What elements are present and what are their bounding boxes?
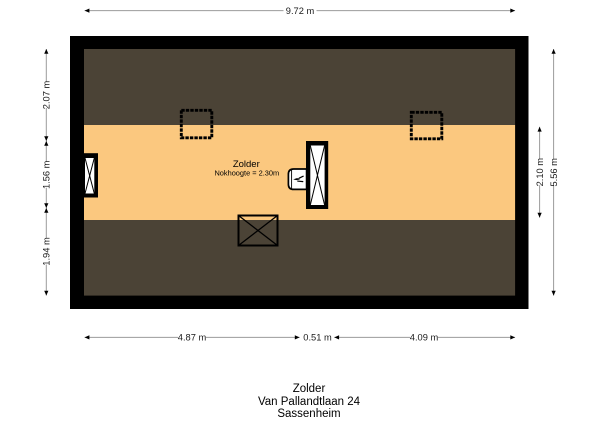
svg-text:Van Pallandtlaan 24: Van Pallandtlaan 24	[258, 396, 361, 408]
svg-text:4.87 m: 4.87 m	[178, 333, 207, 343]
svg-text:1.94 m: 1.94 m	[42, 237, 52, 266]
svg-text:2.07 m: 2.07 m	[42, 81, 52, 110]
svg-text:Nokhoogte = 2.30m: Nokhoogte = 2.30m	[214, 169, 279, 178]
svg-text:4.09 m: 4.09 m	[410, 333, 439, 343]
svg-text:0.51 m: 0.51 m	[303, 333, 332, 343]
svg-text:Zolder: Zolder	[293, 383, 326, 395]
svg-text:2.10 m: 2.10 m	[535, 158, 545, 187]
svg-text:Sassenheim: Sassenheim	[277, 408, 340, 420]
svg-text:1.56 m: 1.56 m	[42, 160, 52, 189]
svg-text:9.72 m: 9.72 m	[286, 6, 315, 16]
svg-text:5.56 m: 5.56 m	[549, 158, 559, 187]
